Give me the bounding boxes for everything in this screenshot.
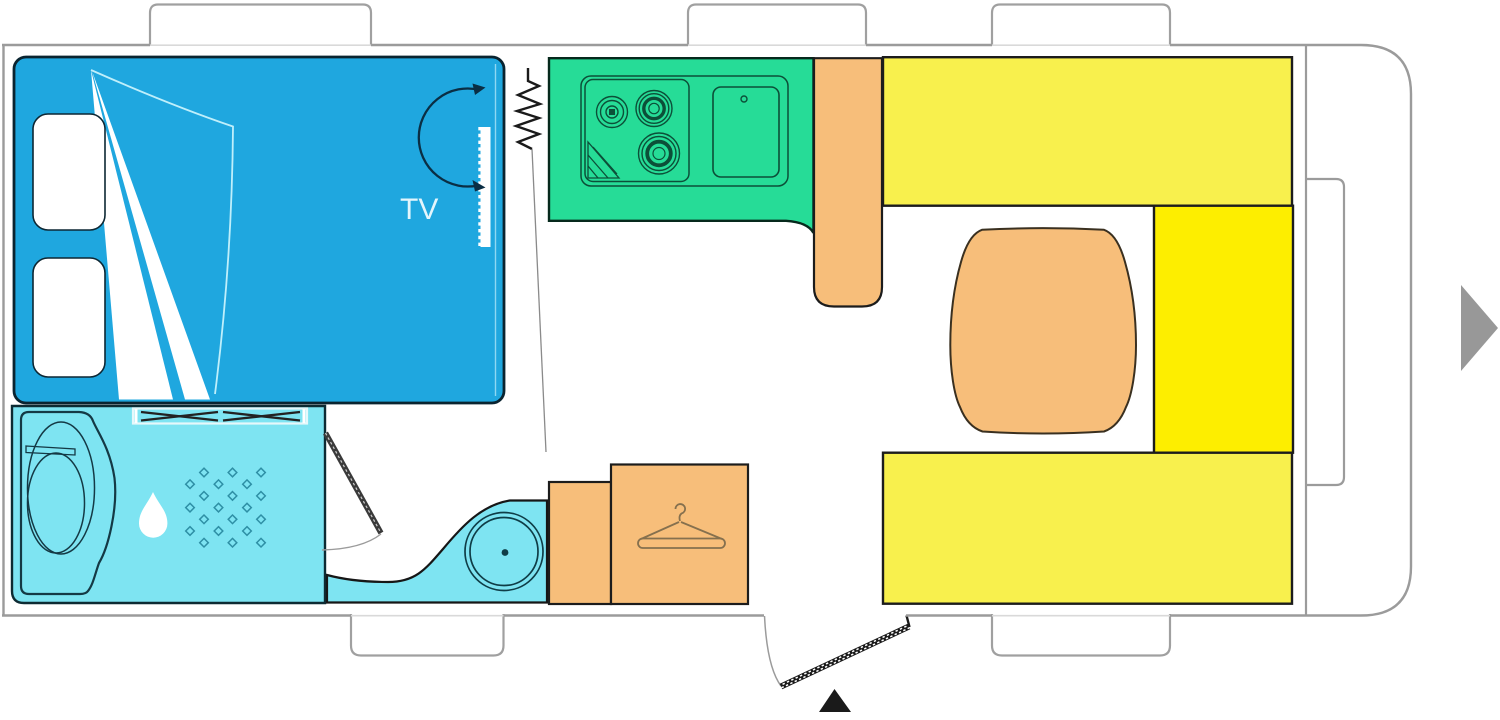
svg-text:TV: TV xyxy=(400,193,438,226)
